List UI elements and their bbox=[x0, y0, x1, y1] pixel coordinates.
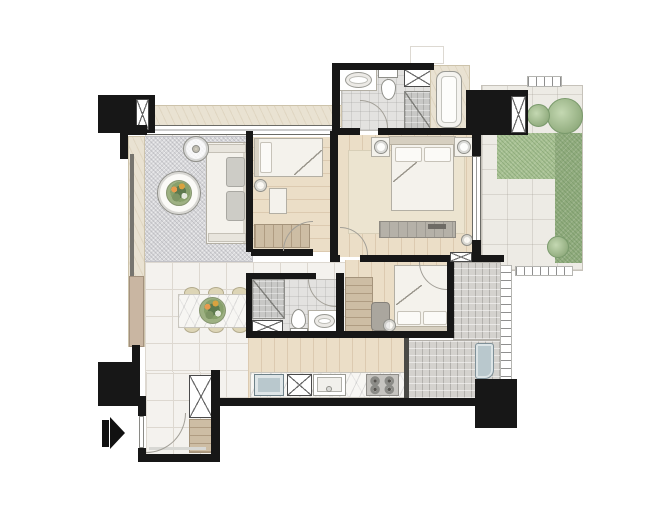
floor-lamp-center bbox=[192, 145, 200, 153]
kitchen-cabinet bbox=[287, 374, 312, 396]
bathroom2-sink bbox=[314, 314, 335, 328]
west-window-frame bbox=[130, 154, 134, 278]
master-bath-sink bbox=[345, 72, 372, 88]
master-east-window bbox=[472, 156, 481, 242]
wall-bath2-south bbox=[246, 331, 344, 338]
master-pillow bbox=[424, 147, 451, 162]
north-window bbox=[145, 125, 335, 135]
master-shower bbox=[404, 91, 432, 130]
wall-bath-north bbox=[336, 63, 434, 70]
shaft-x bbox=[511, 96, 526, 133]
wall-bath2-east bbox=[336, 279, 344, 338]
shrub-icon bbox=[527, 104, 550, 127]
wall-master-east-a bbox=[472, 128, 481, 158]
bedroom3-wardrobe-column bbox=[345, 277, 373, 335]
terrace-railing-hatch-top bbox=[527, 76, 562, 87]
sofa-cushion bbox=[226, 157, 245, 187]
towel-rack-outline bbox=[410, 46, 444, 64]
tree-icon bbox=[547, 98, 583, 134]
wall bbox=[120, 133, 128, 159]
terrace-railing-hatch bbox=[515, 266, 573, 276]
wall-master-south-a bbox=[330, 255, 340, 262]
master-bath-cabinet bbox=[404, 69, 433, 87]
utility-balcony-floor-upper bbox=[453, 262, 501, 340]
wall-entry-east bbox=[211, 370, 220, 462]
bedroom2-lamp-icon bbox=[254, 179, 267, 192]
west-console-cabinet bbox=[129, 276, 144, 347]
wall-master-south-b bbox=[360, 255, 504, 262]
bedroom2-desk bbox=[269, 188, 287, 214]
toilet-bowl bbox=[291, 309, 306, 329]
toilet-tank bbox=[378, 69, 398, 78]
bedroom3-blanket-fold bbox=[396, 285, 422, 305]
bathtub bbox=[436, 71, 462, 128]
column-bottom-right bbox=[475, 379, 517, 428]
stove-four-burners bbox=[366, 374, 399, 396]
bedroom3-pillow bbox=[423, 311, 447, 325]
master-pillow bbox=[395, 147, 422, 162]
wall-bath-south-b bbox=[378, 128, 480, 135]
sofa-armrest bbox=[208, 233, 246, 242]
wall-bath2-west bbox=[246, 273, 252, 338]
entrance-arrow-head bbox=[110, 417, 125, 449]
wall bbox=[120, 125, 147, 135]
dresser-tv bbox=[428, 224, 446, 229]
master-headboard bbox=[389, 136, 456, 145]
wall-bath-south-a bbox=[336, 128, 360, 135]
wall-west-lower bbox=[132, 345, 140, 398]
floor-plan-canvas bbox=[0, 0, 656, 519]
bathroom2-shower bbox=[252, 279, 285, 319]
shrub-icon bbox=[547, 236, 569, 258]
sofa-cushion bbox=[226, 191, 245, 221]
nightstand-lamp-icon bbox=[457, 140, 471, 154]
wall-master-west bbox=[330, 131, 338, 262]
entrance-arrow-icon bbox=[102, 417, 128, 450]
entrance-arrow-bar bbox=[102, 420, 109, 447]
washer-unit bbox=[475, 343, 494, 379]
refrigerator bbox=[254, 374, 284, 396]
shoe-cabinet bbox=[189, 375, 213, 418]
dining-table-flowers bbox=[199, 297, 226, 324]
coffee-table-flowers bbox=[166, 180, 192, 206]
wall-bed3-east bbox=[447, 262, 454, 335]
shaft-x bbox=[450, 252, 472, 262]
wall-entry-south bbox=[138, 454, 220, 462]
sofa-armrest bbox=[208, 144, 246, 153]
wall-south-main bbox=[211, 398, 481, 406]
master-blanket-fold bbox=[393, 162, 417, 182]
bedroom3-pillow bbox=[397, 311, 421, 325]
balcony-railing-hatch bbox=[500, 265, 512, 386]
wall-bath-west bbox=[332, 63, 340, 135]
wall-utility-west bbox=[404, 338, 409, 399]
entry-door-leaf bbox=[139, 416, 144, 448]
wall-living-bed2 bbox=[246, 131, 253, 252]
faucet-icon bbox=[326, 386, 332, 392]
wall-entry-west-b bbox=[138, 448, 146, 462]
wall-bath2-north-a bbox=[246, 273, 316, 279]
wall-kitchen-north bbox=[344, 331, 454, 338]
bedroom2-blanket-fold bbox=[294, 150, 322, 175]
nightstand-lamp-icon bbox=[374, 140, 388, 154]
bedroom2-pillow bbox=[260, 142, 272, 173]
